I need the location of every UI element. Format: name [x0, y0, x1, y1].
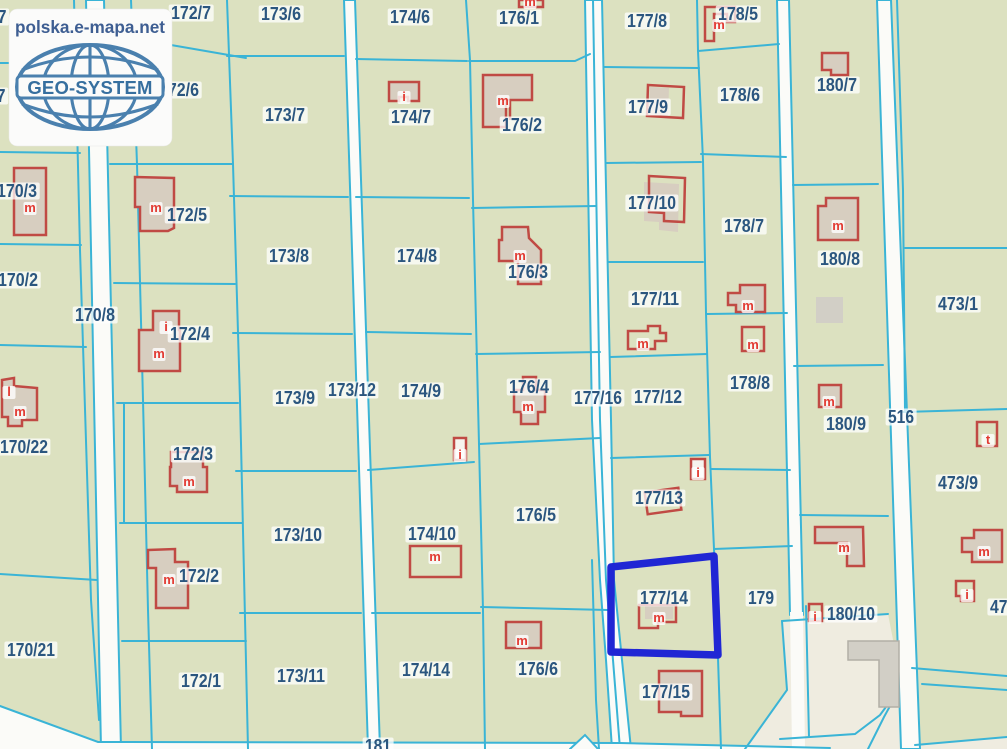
svg-text:l: l	[7, 384, 11, 399]
svg-text:178/8: 178/8	[730, 373, 770, 393]
svg-text:m: m	[14, 404, 26, 419]
svg-text:176/4: 176/4	[509, 377, 549, 397]
svg-text:172/5: 172/5	[167, 205, 207, 225]
svg-text:179: 179	[748, 588, 774, 608]
svg-text:172/2: 172/2	[179, 566, 219, 586]
svg-text:174/8: 174/8	[397, 246, 437, 266]
svg-text:170/8: 170/8	[75, 305, 115, 325]
svg-text:174/10: 174/10	[408, 524, 456, 544]
svg-text:177/12: 177/12	[634, 387, 682, 407]
svg-text:173/8: 173/8	[269, 246, 309, 266]
svg-text:170/3: 170/3	[0, 181, 37, 201]
svg-text:173/12: 173/12	[328, 380, 376, 400]
svg-text:173/10: 173/10	[274, 525, 322, 545]
svg-text:m: m	[429, 549, 441, 564]
svg-text:176/3: 176/3	[508, 262, 548, 282]
svg-text:177/16: 177/16	[574, 388, 622, 408]
svg-text:m: m	[163, 572, 175, 587]
svg-text:GEO-SYSTEM: GEO-SYSTEM	[27, 77, 152, 98]
svg-text:180/8: 180/8	[820, 249, 860, 269]
svg-text:i: i	[164, 319, 168, 334]
svg-text:i: i	[965, 587, 969, 602]
svg-text:178/7: 178/7	[724, 216, 764, 236]
svg-text:180/7: 180/7	[817, 75, 857, 95]
svg-text:174/9: 174/9	[401, 381, 441, 401]
svg-text:m: m	[823, 394, 835, 409]
svg-text:7: 7	[0, 7, 7, 27]
svg-text:i: i	[458, 447, 462, 462]
svg-text:177/11: 177/11	[631, 289, 679, 309]
svg-text:polska.e-mapa.net: polska.e-mapa.net	[15, 17, 165, 37]
svg-text:180/9: 180/9	[826, 414, 866, 434]
svg-text:473/1: 473/1	[938, 294, 978, 314]
svg-text:m: m	[978, 544, 990, 559]
svg-text:m: m	[497, 93, 509, 108]
svg-text:173/7: 173/7	[265, 105, 305, 125]
svg-text:m: m	[514, 248, 526, 263]
svg-text:i: i	[402, 89, 406, 104]
svg-text:m: m	[653, 610, 665, 625]
svg-text:172/7: 172/7	[171, 3, 211, 23]
svg-text:178/5: 178/5	[718, 4, 758, 24]
svg-text:m: m	[516, 633, 528, 648]
svg-text:174/6: 174/6	[390, 7, 430, 27]
svg-text:m: m	[747, 337, 759, 352]
svg-text:473/10: 473/10	[990, 597, 1007, 617]
svg-text:177/13: 177/13	[635, 488, 683, 508]
svg-text:t: t	[986, 432, 991, 447]
svg-text:7: 7	[0, 86, 6, 106]
svg-text:m: m	[153, 346, 165, 361]
svg-text:m: m	[832, 218, 844, 233]
svg-text:177/14: 177/14	[640, 588, 688, 608]
svg-text:170/22: 170/22	[0, 437, 48, 457]
svg-text:174/14: 174/14	[402, 660, 450, 680]
svg-text:170/2: 170/2	[0, 270, 38, 290]
svg-text:m: m	[522, 399, 534, 414]
svg-text:m: m	[637, 336, 649, 351]
svg-text:177/15: 177/15	[642, 682, 690, 702]
svg-text:172/1: 172/1	[181, 671, 221, 691]
svg-text:176/2: 176/2	[502, 115, 542, 135]
svg-text:172/4: 172/4	[170, 324, 210, 344]
svg-text:m: m	[742, 298, 754, 313]
svg-text:m: m	[183, 474, 195, 489]
svg-text:174/7: 174/7	[391, 107, 431, 127]
svg-text:m: m	[838, 540, 850, 555]
svg-text:177/9: 177/9	[628, 97, 668, 117]
svg-text:173/6: 173/6	[261, 4, 301, 24]
svg-text:i: i	[696, 465, 700, 480]
svg-text:176/5: 176/5	[516, 505, 556, 525]
svg-text:m: m	[150, 200, 162, 215]
svg-text:516: 516	[888, 407, 914, 427]
svg-text:177/10: 177/10	[628, 193, 676, 213]
svg-text:176/1: 176/1	[499, 8, 539, 28]
svg-text:173/9: 173/9	[275, 388, 315, 408]
svg-text:173/11: 173/11	[277, 666, 325, 686]
svg-text:178/6: 178/6	[720, 85, 760, 105]
svg-text:180/10: 180/10	[827, 604, 875, 624]
svg-text:473/9: 473/9	[938, 473, 978, 493]
svg-text:172/3: 172/3	[173, 444, 213, 464]
svg-text:m: m	[24, 200, 36, 215]
svg-text:177/8: 177/8	[627, 11, 667, 31]
svg-text:181: 181	[365, 736, 391, 749]
svg-text:170/21: 170/21	[7, 640, 55, 660]
svg-text:i: i	[813, 609, 817, 624]
svg-text:176/6: 176/6	[518, 659, 558, 679]
